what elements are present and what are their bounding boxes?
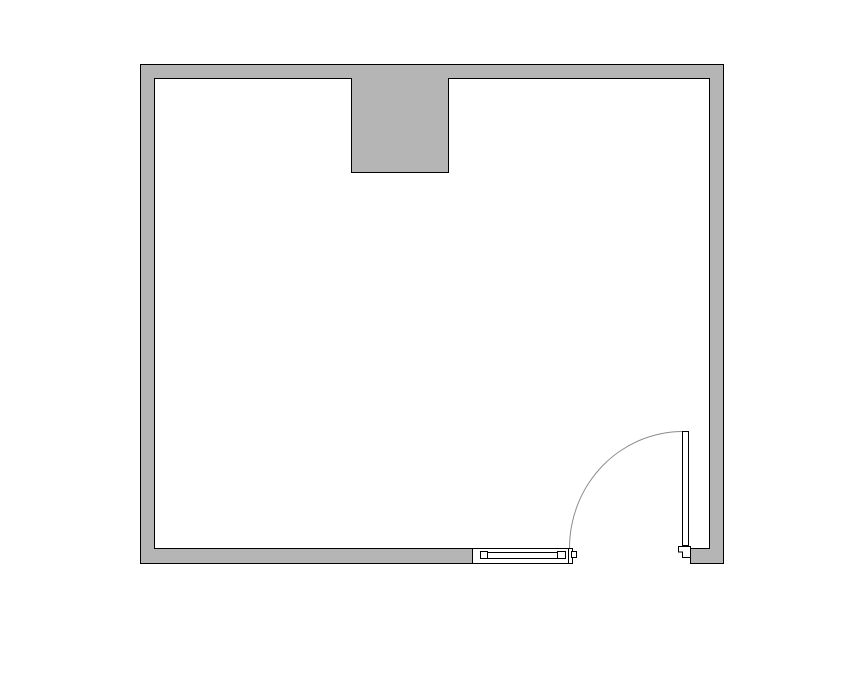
window-glass-lines (488, 552, 557, 559)
door-jamb-cap (571, 551, 577, 558)
door-leaf (682, 431, 689, 546)
window-post-right (557, 551, 566, 559)
window-post-left (480, 551, 488, 559)
floor-plan-canvas (0, 0, 855, 678)
wall-column (351, 79, 449, 173)
